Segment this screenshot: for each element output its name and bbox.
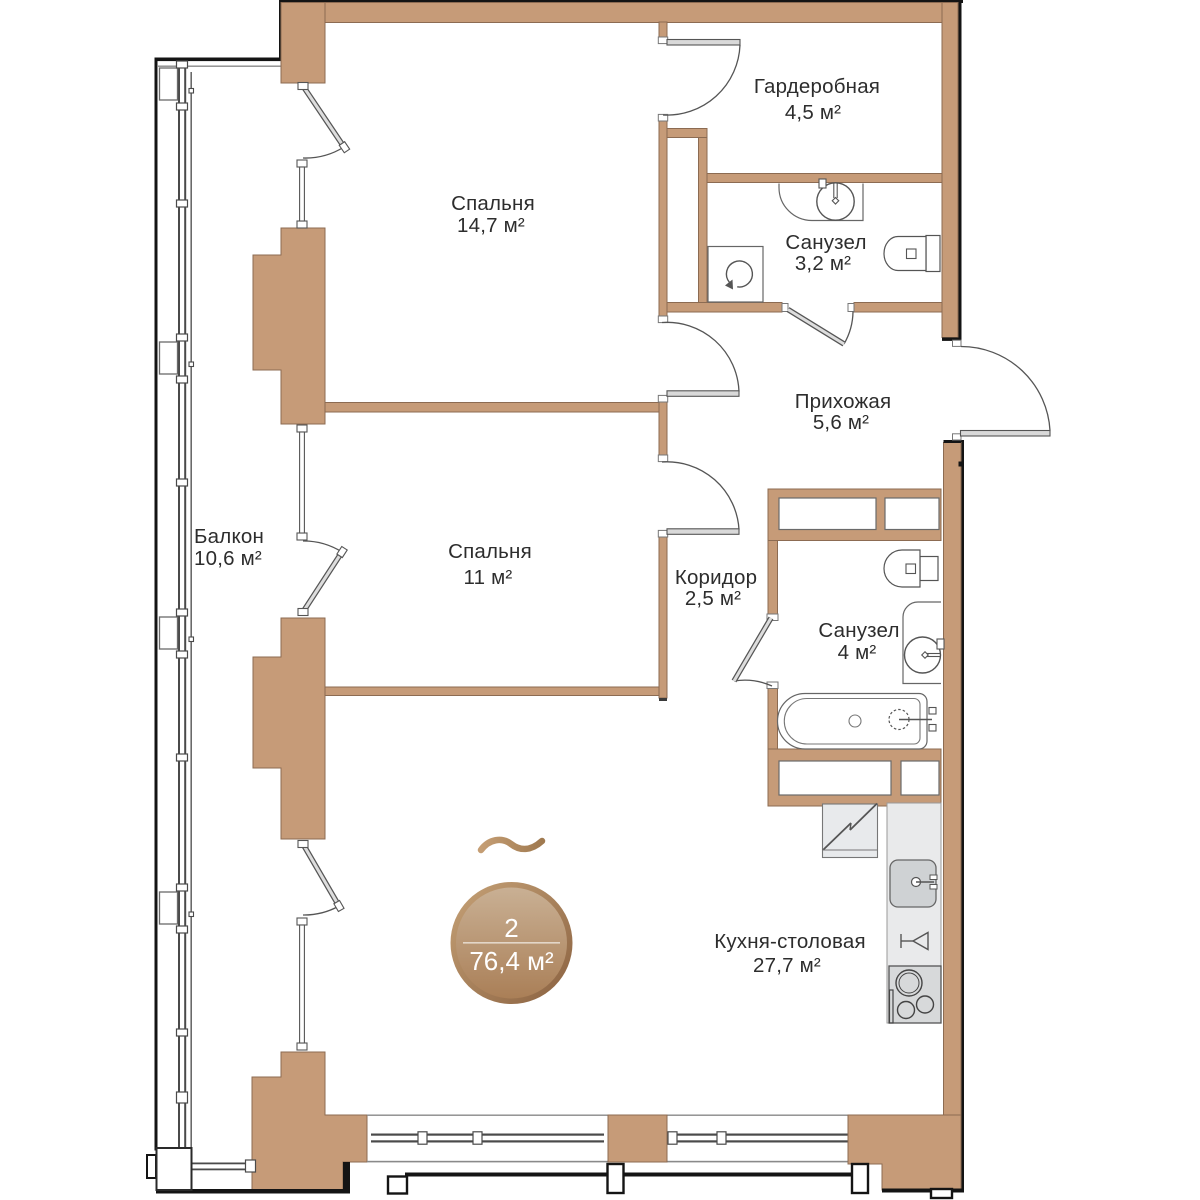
svg-text:76,4 м²: 76,4 м²: [469, 946, 554, 976]
svg-text:2,5 м²: 2,5 м²: [685, 587, 741, 610]
svg-text:Коридор: Коридор: [675, 566, 757, 589]
svg-text:2: 2: [504, 913, 518, 943]
svg-text:14,7 м²: 14,7 м²: [457, 214, 525, 237]
svg-text:10,6 м²: 10,6 м²: [194, 547, 262, 570]
svg-text:4 м²: 4 м²: [838, 641, 877, 664]
svg-text:5,6 м²: 5,6 м²: [813, 411, 869, 434]
svg-text:4,5 м²: 4,5 м²: [785, 101, 841, 124]
svg-text:11 м²: 11 м²: [464, 566, 513, 589]
svg-text:3,2 м²: 3,2 м²: [795, 252, 851, 275]
svg-text:27,7 м²: 27,7 м²: [753, 954, 821, 977]
svg-text:Спальня: Спальня: [451, 192, 535, 215]
svg-text:Балкон: Балкон: [194, 525, 264, 548]
svg-text:Санузел: Санузел: [818, 619, 899, 642]
svg-text:Прихожая: Прихожая: [795, 390, 892, 413]
svg-text:Спальня: Спальня: [448, 540, 532, 563]
svg-text:Кухня-столовая: Кухня-столовая: [714, 930, 866, 953]
svg-text:Гардеробная: Гардеробная: [754, 75, 880, 98]
svg-text:Санузел: Санузел: [785, 231, 866, 254]
